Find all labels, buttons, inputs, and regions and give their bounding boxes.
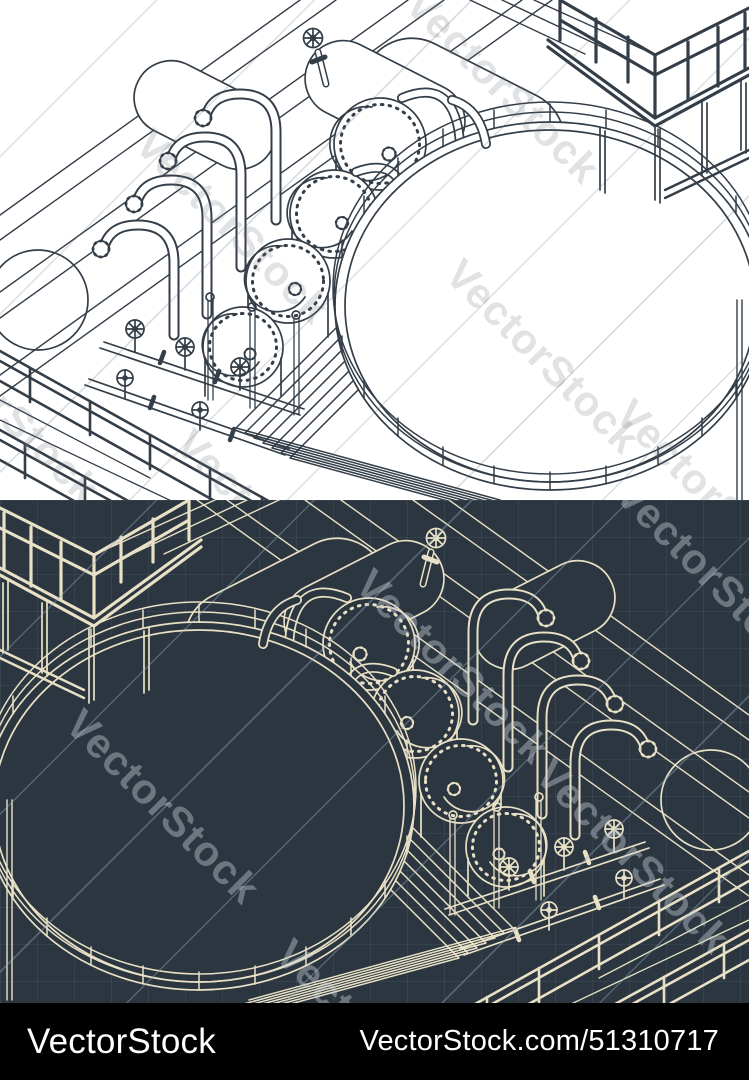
vectorstock-logo: VectorStock bbox=[27, 1022, 216, 1062]
blueprint-panel: VectorStock VectorStock VectorStock Vect… bbox=[0, 500, 749, 1003]
stock-image-preview: VectorStock VectorStock VectorStock Vect… bbox=[0, 0, 749, 1080]
footer-bar: VectorStock VectorStock.com/51310717 bbox=[0, 1003, 749, 1080]
line-art-panel: VectorStock VectorStock VectorStock Vect… bbox=[0, 0, 749, 500]
refinery-isometric-drawing-light bbox=[0, 0, 749, 500]
refinery-isometric-drawing-dark bbox=[0, 500, 749, 1003]
image-url-text: VectorStock.com/51310717 bbox=[360, 1025, 719, 1058]
